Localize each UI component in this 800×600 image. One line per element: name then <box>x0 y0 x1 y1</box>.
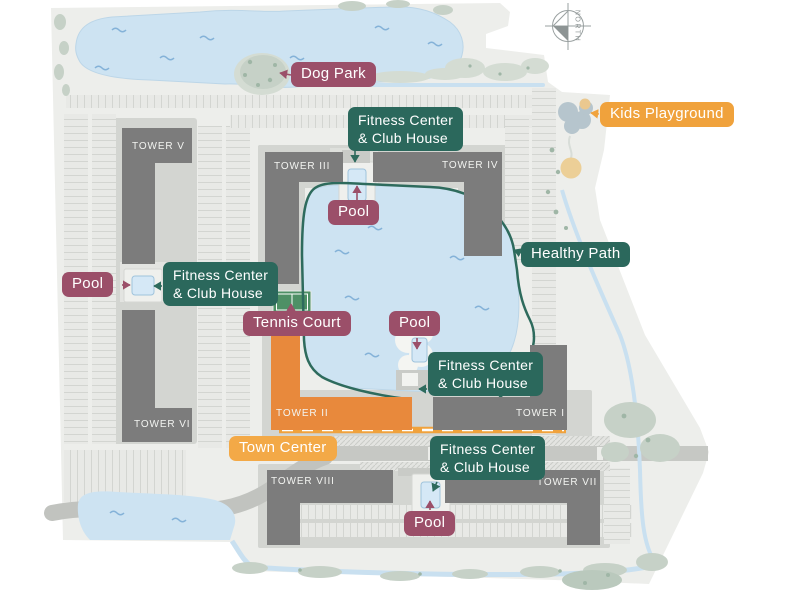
fitness-center-badge-south: Fitness Center & Club House <box>430 436 545 480</box>
pool-badge-central: Pool <box>389 311 440 336</box>
north-compass: NORTH <box>545 3 591 50</box>
tower-iv-label: TOWER IV <box>442 160 498 171</box>
pool-badge-south: Pool <box>404 511 455 536</box>
pool-badge-west: Pool <box>62 272 113 297</box>
tower-vii-label: TOWER VII <box>537 477 597 488</box>
tower-v-label: TOWER V <box>132 141 185 152</box>
tower-i-label: TOWER I <box>516 408 565 419</box>
tower-vi-label: TOWER VI <box>134 419 190 430</box>
tennis-court-structure <box>273 291 311 313</box>
pool-badge-north: Pool <box>328 200 379 225</box>
tennis-court-badge: Tennis Court <box>243 311 351 336</box>
town-center-badge: Town Center <box>229 436 337 461</box>
site-plan-graphic: NORTH <box>0 0 800 600</box>
fitness-center-badge-west: Fitness Center & Club House <box>163 262 278 306</box>
dog-park-badge: Dog Park <box>291 62 376 87</box>
tower-iii-label: TOWER III <box>274 161 330 172</box>
fitness-center-line2: & Club House <box>358 129 453 147</box>
healthy-path-badge: Healthy Path <box>521 242 630 267</box>
fitness-center-line1: Fitness Center <box>173 266 268 284</box>
site-plan-map: NORTH TOWER V TOWER III TOWER IV TOWER V… <box>0 0 800 600</box>
tower-ii-label: TOWER II <box>276 408 329 419</box>
fitness-center-line1: Fitness Center <box>358 111 453 129</box>
fitness-center-line2: & Club House <box>438 374 533 392</box>
tower-viii-label: TOWER VIII <box>271 476 335 487</box>
kids-playground-badge: Kids Playground <box>600 102 734 127</box>
fitness-center-line2: & Club House <box>440 458 535 476</box>
fitness-center-line1: Fitness Center <box>438 356 533 374</box>
fitness-center-line1: Fitness Center <box>440 440 535 458</box>
fitness-center-badge-north: Fitness Center & Club House <box>348 107 463 151</box>
compass-north-label: NORTH <box>574 10 581 42</box>
fitness-center-badge-central: Fitness Center & Club House <box>428 352 543 396</box>
fitness-center-line2: & Club House <box>173 284 268 302</box>
